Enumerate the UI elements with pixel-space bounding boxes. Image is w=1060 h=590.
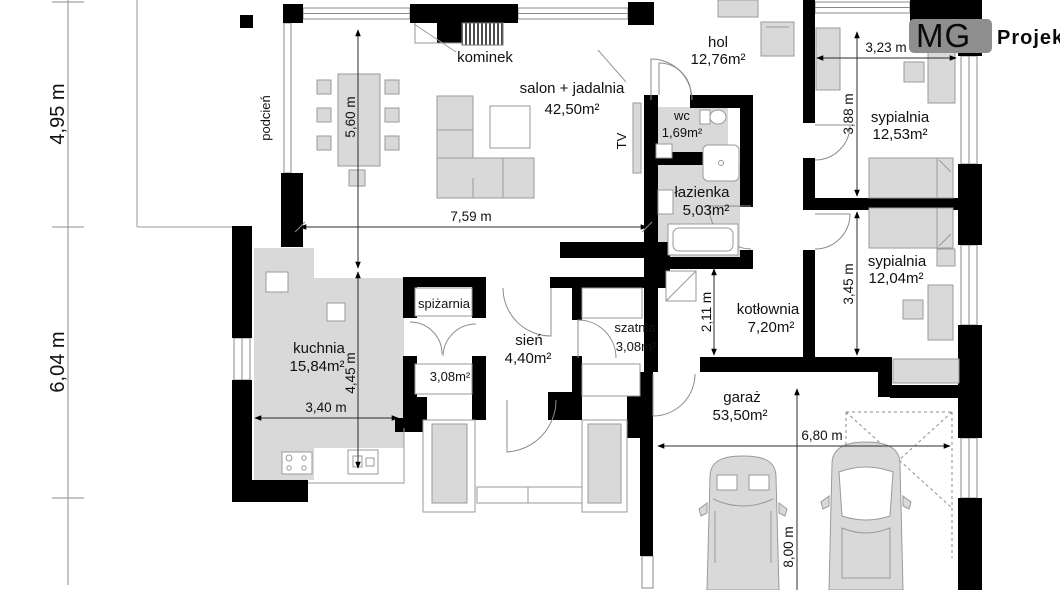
car-mirror — [779, 503, 787, 516]
kuchnia-area: 15,84m² — [289, 358, 344, 375]
wall-segment — [628, 2, 654, 25]
chair — [385, 136, 399, 150]
sypialnia2-label: sypialnia — [868, 253, 927, 270]
car-left — [699, 456, 787, 590]
car-mirror — [821, 496, 829, 509]
garaz-area: 53,50m² — [712, 407, 767, 424]
tv-cabinet — [633, 103, 641, 173]
wardrobe-inner — [432, 424, 467, 503]
washbasin — [656, 144, 672, 158]
wall-segment — [700, 357, 807, 372]
wall-segment — [878, 357, 892, 397]
wall-segment — [232, 480, 308, 502]
sien-area: 4,40m² — [505, 350, 552, 367]
toilet-bowl — [710, 110, 726, 124]
szatnia-area: 3,08m² — [616, 339, 657, 354]
wardrobe — [582, 364, 640, 396]
wardrobe — [582, 288, 642, 318]
bathtub — [668, 224, 738, 255]
kuchnia-label: kuchnia — [293, 340, 345, 357]
bed — [869, 158, 953, 198]
door-arc — [578, 320, 616, 358]
spizarnia-label: spiżarnia — [418, 296, 471, 311]
salon-leader — [598, 50, 626, 82]
dim-kotlownia-height: 2,11 m — [699, 292, 714, 332]
dim-sypialnia1-width: 3,23 m — [865, 40, 906, 55]
door-arc — [815, 214, 850, 249]
wall-segment — [640, 438, 653, 556]
logo-projekt-text: Projekt — [997, 27, 1060, 49]
sypialnia1-area: 12,53m² — [872, 126, 927, 143]
chair — [317, 108, 331, 122]
logo-mg-text: MG — [916, 17, 971, 54]
chair — [385, 108, 399, 122]
chair — [317, 80, 331, 94]
fireplace-hatch — [462, 23, 503, 45]
wall-segment — [395, 418, 425, 432]
wall-segment — [472, 356, 486, 420]
threshold — [477, 487, 528, 503]
kominek-label: kominek — [457, 49, 513, 66]
car-window — [749, 475, 769, 490]
wall-segment — [803, 0, 815, 123]
car-right — [821, 442, 911, 590]
kitchen-appliance — [327, 303, 345, 321]
glass-wall — [284, 23, 291, 173]
stove — [282, 452, 312, 474]
bed — [869, 208, 953, 248]
dim-garaz-width: 6,80 m — [801, 428, 842, 443]
floor-plan: 4,95 m 6,04 m — [0, 0, 1060, 590]
lazienka-label: łazienka — [674, 184, 730, 201]
spizarnia-area: 3,08m² — [430, 369, 471, 384]
wall-segment — [958, 498, 982, 590]
chair — [317, 136, 331, 150]
car-window — [717, 475, 737, 490]
szatnia-label: szatnia — [614, 320, 656, 335]
window — [642, 556, 653, 588]
desk — [928, 285, 953, 340]
dim-kuchnia-height: 4,45 m — [343, 352, 358, 393]
wall-segment — [232, 226, 252, 338]
nightstand — [904, 62, 924, 82]
sien-label: sień — [515, 332, 543, 349]
wall-segment — [240, 15, 253, 28]
kitchen-appliance — [266, 272, 288, 292]
sypialnia2-area: 12,04m² — [868, 270, 923, 287]
wall-segment — [550, 277, 645, 288]
threshold — [528, 487, 582, 503]
garaz-label: garaż — [723, 389, 761, 406]
chair — [385, 80, 399, 94]
wall-segment — [572, 356, 582, 396]
chair — [903, 300, 923, 319]
dim-sypialnia2-height: 3,45 m — [841, 263, 856, 304]
toilet — [700, 110, 710, 124]
door-arc — [653, 374, 695, 416]
wall-segment — [283, 4, 303, 23]
hol-label: hol — [708, 34, 728, 51]
coffee-table — [490, 106, 530, 148]
podcien-label: podcień — [258, 95, 273, 141]
sofa — [437, 158, 534, 198]
salon-area: 42,50m² — [544, 101, 599, 118]
wall-segment — [740, 95, 753, 207]
wc-label: wc — [673, 108, 690, 123]
dim-salon-height: 5,60 m — [343, 96, 358, 137]
wall-segment — [281, 173, 303, 247]
dim-salon-width: 7,59 m — [450, 209, 491, 224]
dim-sypialnia1-height: 3,88 m — [841, 93, 856, 134]
sypialnia1-label: sypialnia — [871, 109, 930, 126]
wall-segment — [958, 325, 982, 387]
car-mirror — [903, 496, 911, 509]
tv-label: TV — [614, 132, 629, 149]
wall-segment — [548, 392, 582, 420]
logo: MG Projekt — [909, 17, 1060, 54]
cabinet — [893, 359, 959, 383]
lazienka-area: 5,03m² — [683, 202, 730, 219]
hol-area: 12,76m² — [690, 51, 745, 68]
kotlownia-label: kotłownia — [737, 301, 800, 318]
left-dimension-line: 4,95 m 6,04 m — [47, 0, 84, 585]
dim-kuchnia-width: 3,40 m — [305, 400, 346, 415]
wall-segment — [655, 257, 753, 269]
chair — [349, 170, 365, 186]
door-arc — [443, 324, 476, 356]
wardrobe — [928, 47, 955, 103]
wall-segment — [403, 277, 485, 287]
salon-label: salon + jadalnia — [520, 80, 625, 97]
wall-segment — [644, 95, 658, 255]
wall-segment — [560, 242, 655, 258]
wardrobe-inner — [588, 424, 621, 503]
podcien-outline — [137, 0, 232, 227]
wall-segment — [890, 385, 982, 398]
dim-left-top: 4,95 m — [47, 83, 69, 144]
fireplace-block — [437, 23, 462, 43]
wc-area: 1,69m² — [662, 125, 703, 140]
kotlownia-area: 7,20m² — [748, 319, 795, 336]
wall-segment — [803, 250, 815, 372]
door-arc — [410, 322, 442, 354]
nightstand — [937, 249, 955, 266]
car-cabin — [839, 467, 893, 520]
door-arc — [503, 288, 551, 336]
chimney-block — [410, 4, 518, 23]
washbasin — [658, 190, 673, 214]
dim-garaz-height: 8,00 m — [781, 526, 796, 567]
dim-left-bottom: 6,04 m — [47, 331, 69, 392]
car-mirror — [699, 503, 707, 516]
wardrobe — [816, 28, 840, 90]
wall-segment — [807, 357, 882, 372]
shower — [703, 145, 739, 181]
wall-segment — [232, 380, 252, 480]
cabinet — [718, 0, 758, 17]
